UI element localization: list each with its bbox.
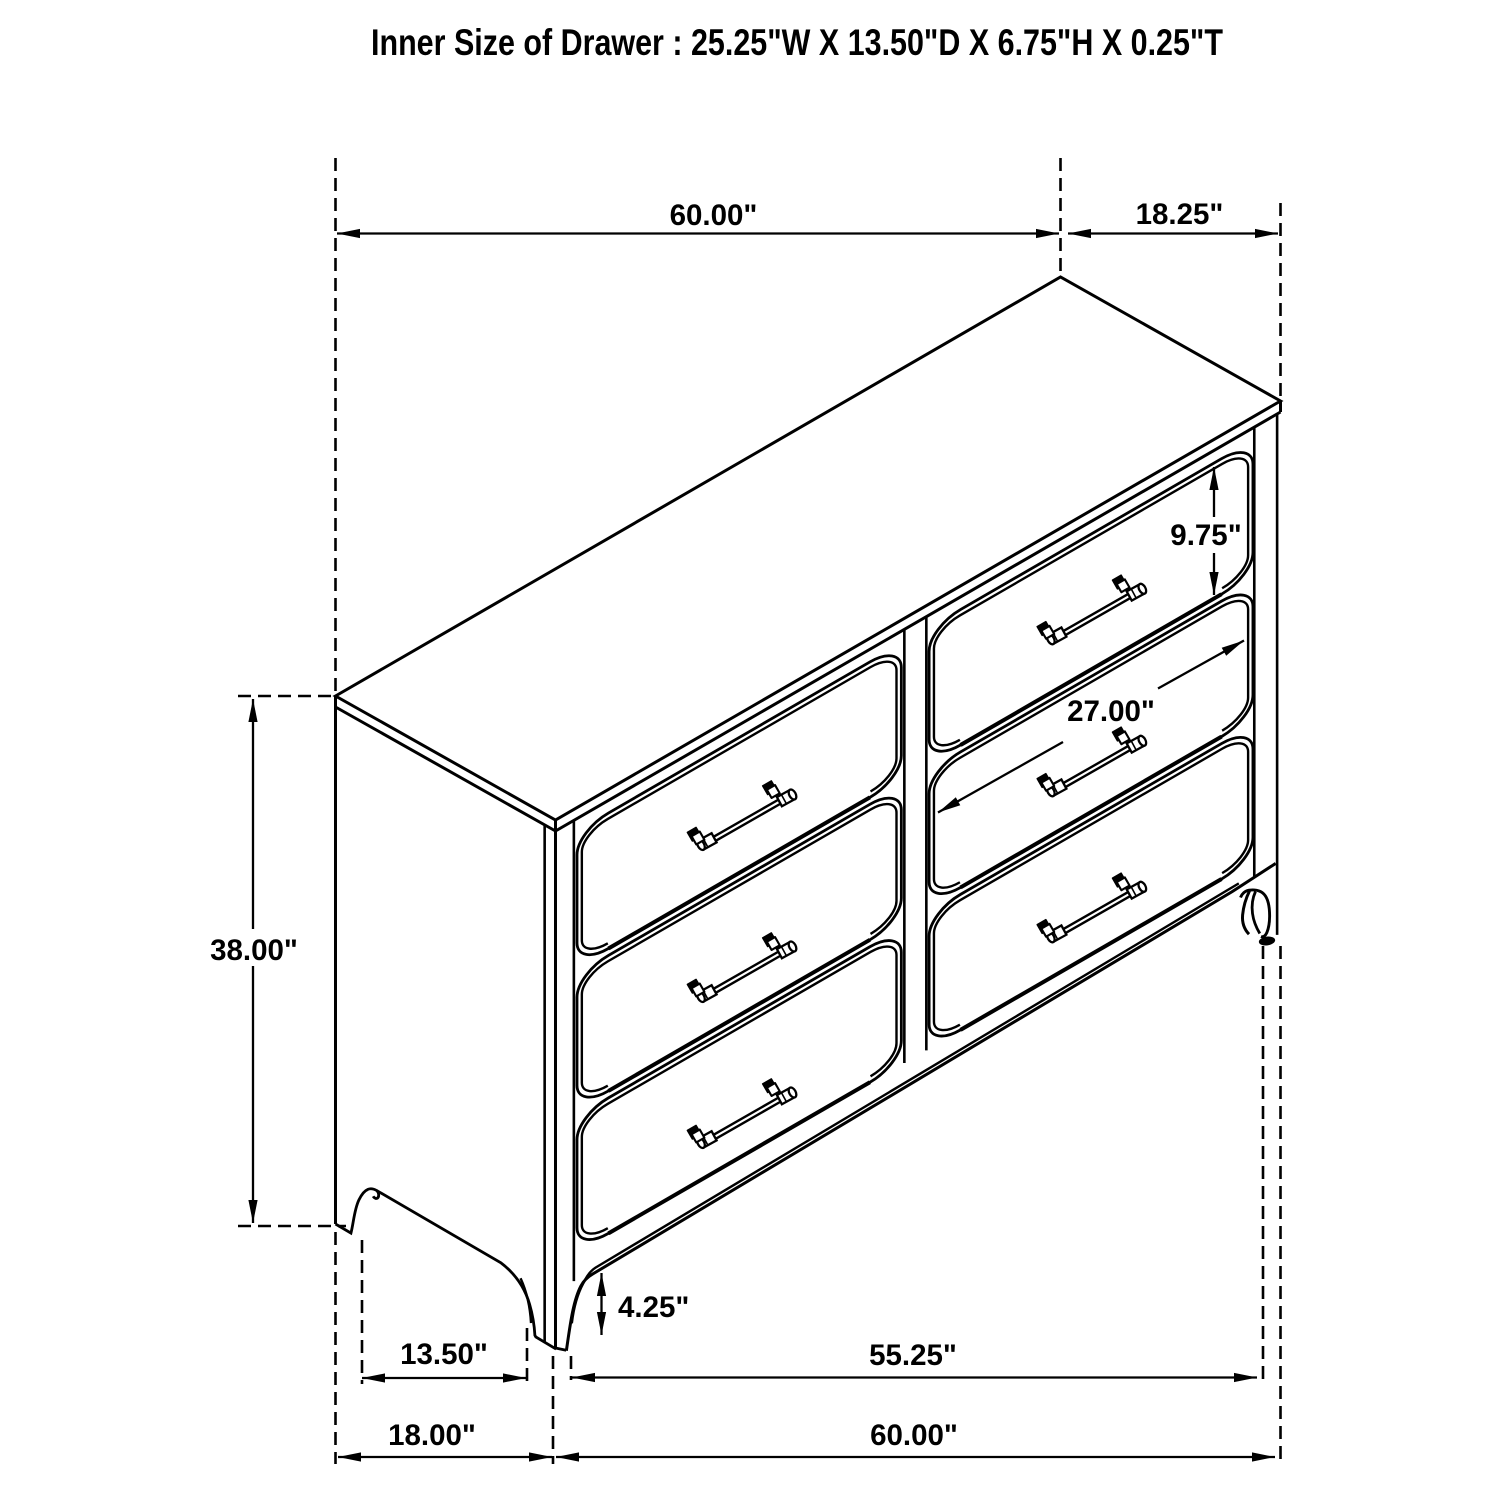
svg-text:55.25": 55.25" [869,1339,957,1372]
svg-text:27.00": 27.00" [1067,695,1155,728]
svg-text:18.00": 18.00" [388,1419,476,1452]
svg-text:4.25": 4.25" [618,1291,689,1324]
svg-text:38.00": 38.00" [210,934,298,967]
svg-text:Inner Size of Drawer : 25.25"W: Inner Size of Drawer : 25.25"W X 13.50"D… [371,22,1223,63]
svg-text:60.00": 60.00" [670,199,758,232]
svg-text:9.75": 9.75" [1170,519,1241,552]
svg-text:60.00": 60.00" [870,1419,958,1452]
svg-text:18.25": 18.25" [1136,198,1224,231]
svg-text:13.50": 13.50" [400,1338,488,1371]
